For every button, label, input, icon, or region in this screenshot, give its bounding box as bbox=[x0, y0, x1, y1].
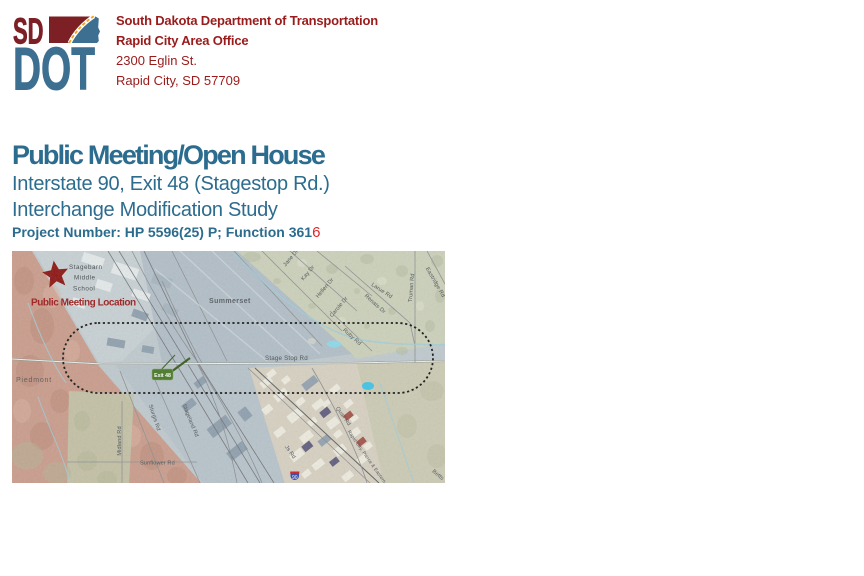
svg-text:DOT: DOT bbox=[13, 36, 95, 95]
